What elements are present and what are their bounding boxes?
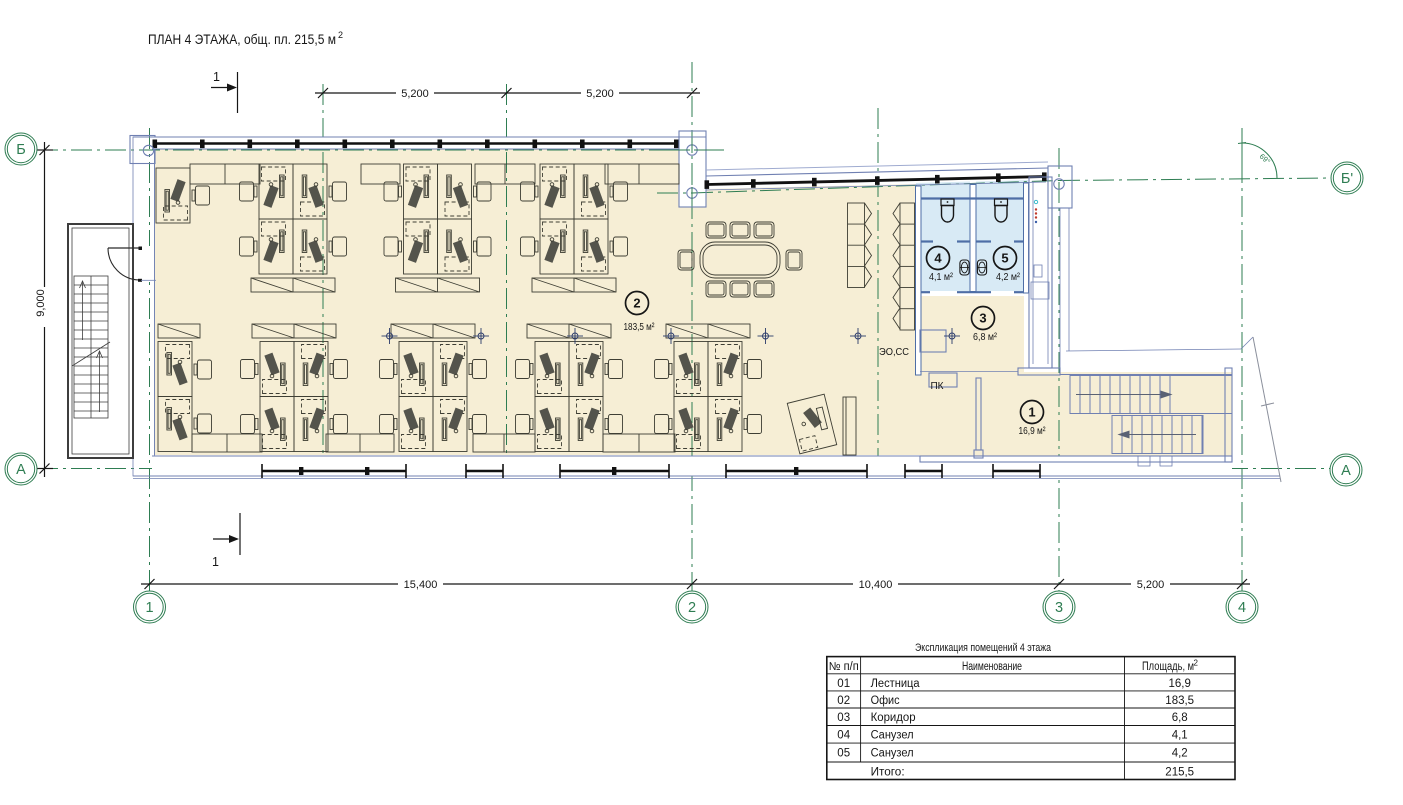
svg-text:Экспликация помещений 4 этажа: Экспликация помещений 4 этажа [915,642,1052,654]
svg-text:05: 05 [837,747,850,759]
svg-text:2: 2 [1194,659,1199,668]
svg-text:Санузел: Санузел [871,730,914,742]
svg-text:Б': Б' [1341,171,1354,187]
svg-text:4,1 м²: 4,1 м² [929,272,954,283]
svg-text:№ п/п: № п/п [829,661,859,673]
svg-text:Коридор: Коридор [871,712,916,724]
svg-text:6,8: 6,8 [1172,712,1188,724]
svg-text:Площадь, м: Площадь, м [1142,661,1194,673]
svg-text:1: 1 [1028,405,1035,420]
svg-text:9,000: 9,000 [35,289,47,317]
svg-text:4,2: 4,2 [1172,747,1188,759]
svg-text:1: 1 [213,70,220,84]
svg-text:01: 01 [837,678,850,690]
svg-text:5,200: 5,200 [1137,579,1165,591]
svg-text:03: 03 [837,712,850,724]
svg-text:04: 04 [837,730,850,742]
svg-text:3: 3 [979,311,986,326]
svg-text:183,5 м²: 183,5 м² [624,322,656,333]
svg-text:16,9: 16,9 [1169,678,1191,690]
svg-text:ЭО,СС: ЭО,СС [879,347,909,358]
svg-text:А: А [16,462,26,478]
svg-text:4: 4 [1238,600,1246,616]
svg-text:ПК: ПК [930,381,943,392]
svg-text:5,200: 5,200 [586,88,614,100]
svg-text:02: 02 [837,695,850,707]
svg-text:2: 2 [633,296,640,311]
svg-text:6,8 м²: 6,8 м² [973,332,998,343]
svg-text:2: 2 [688,600,696,616]
svg-text:16,9 м²: 16,9 м² [1019,426,1047,437]
svg-text:4,1: 4,1 [1172,730,1188,742]
svg-text:Офис: Офис [871,695,900,707]
svg-text:183,5: 183,5 [1165,695,1194,707]
svg-text:1: 1 [145,600,153,616]
svg-text:215,5: 215,5 [1165,766,1194,778]
svg-text:15,400: 15,400 [404,579,438,591]
svg-text:5,200: 5,200 [401,88,429,100]
svg-text:Итого:: Итого: [871,766,905,778]
svg-text:10,400: 10,400 [859,579,893,591]
svg-text:Наименование: Наименование [962,661,1022,673]
svg-text:3: 3 [1055,600,1063,616]
svg-text:Б: Б [16,142,26,158]
svg-text:1: 1 [212,555,219,569]
svg-text:2: 2 [338,30,343,40]
svg-text:5: 5 [1001,251,1008,266]
svg-text:Санузел: Санузел [871,747,914,759]
svg-text:А: А [1341,463,1351,479]
svg-text:ПЛАН 4 ЭТАЖА, общ. пл. 215,5: ПЛАН 4 ЭТАЖА, общ. пл. 215,5 м [148,32,336,47]
svg-text:4,2 м²: 4,2 м² [996,272,1021,283]
svg-text:Лестница: Лестница [871,678,921,690]
svg-text:4: 4 [934,251,942,266]
